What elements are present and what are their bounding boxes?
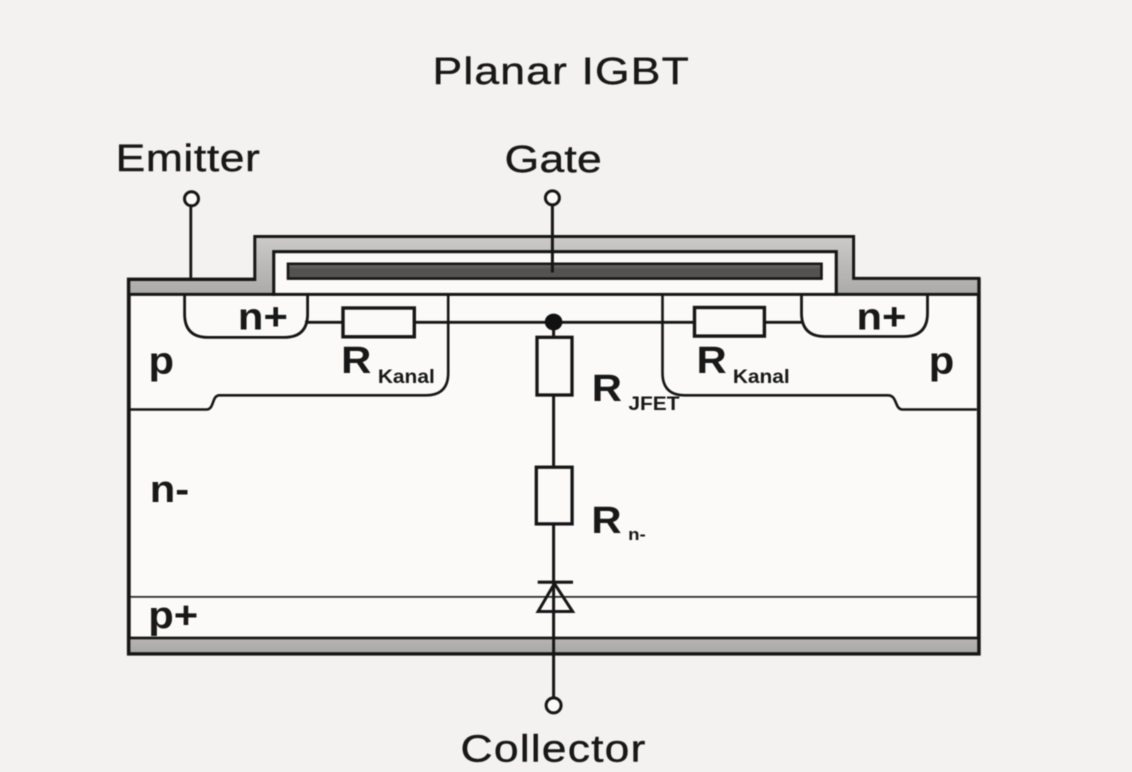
svg-text:Kanal: Kanal bbox=[733, 367, 790, 388]
svg-text:R: R bbox=[341, 340, 371, 382]
svg-text:R: R bbox=[591, 500, 621, 542]
svg-text:Kanal: Kanal bbox=[378, 367, 435, 388]
svg-text:p+: p+ bbox=[148, 595, 198, 637]
svg-text:n+: n+ bbox=[856, 296, 906, 338]
svg-text:R: R bbox=[592, 368, 622, 410]
svg-text:Emitter: Emitter bbox=[116, 137, 261, 179]
svg-text:Planar IGBT: Planar IGBT bbox=[433, 50, 690, 92]
svg-text:p: p bbox=[929, 340, 955, 382]
svg-text:n+: n+ bbox=[238, 296, 288, 338]
svg-text:p: p bbox=[149, 340, 175, 382]
svg-text:Collector: Collector bbox=[461, 728, 647, 770]
svg-text:R: R bbox=[697, 340, 727, 382]
svg-text:n-: n- bbox=[628, 525, 646, 544]
svg-text:JFET: JFET bbox=[628, 394, 679, 415]
svg-text:n-: n- bbox=[150, 469, 189, 511]
svg-text:Gate: Gate bbox=[505, 138, 602, 180]
